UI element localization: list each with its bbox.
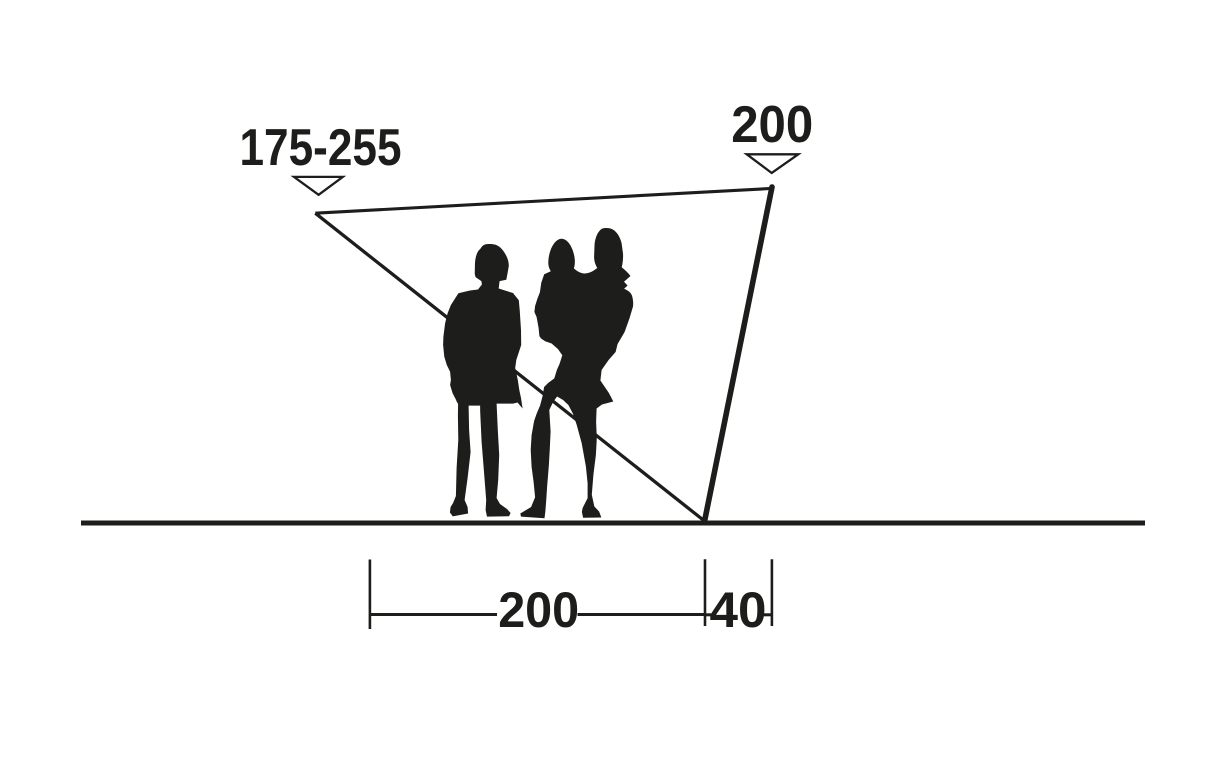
svg-text:40: 40 [710,582,767,638]
svg-text:175-255: 175-255 [240,119,402,177]
svg-text:200: 200 [498,582,579,638]
svg-text:200: 200 [731,96,813,154]
